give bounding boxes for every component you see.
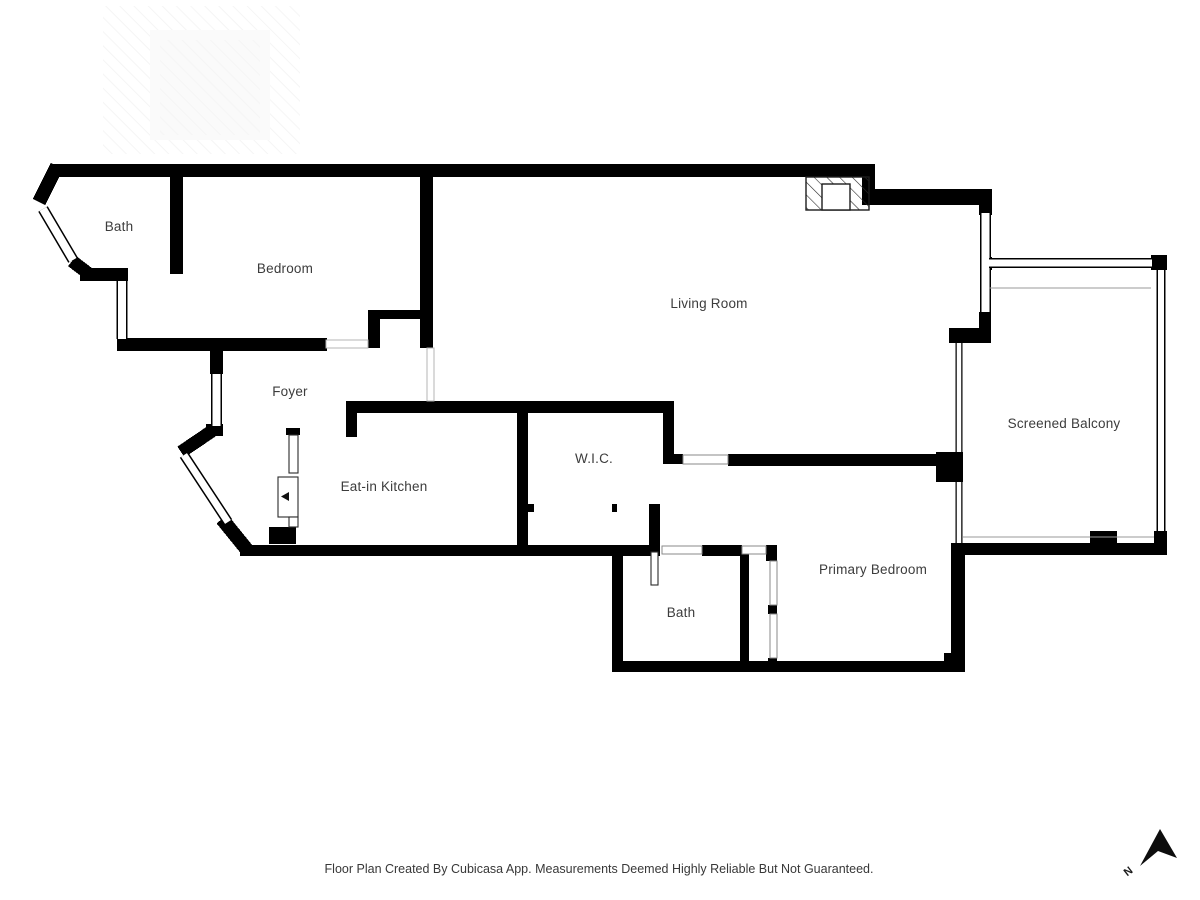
room-label-wic: W.I.C. [575,451,613,466]
north-arrow-icon: N [1122,829,1177,879]
room-label-living-room: Living Room [670,296,747,311]
walls [39,164,1167,672]
windows [43,209,1161,543]
entry-sidelight [289,435,298,473]
watermark-texture [103,6,300,154]
floor-plan-page: Bath Bedroom Living Room Foyer Eat-in Ki… [0,0,1200,900]
room-label-kitchen: Eat-in Kitchen [341,479,428,494]
floor-plan-canvas: Bath Bedroom Living Room Foyer Eat-in Ki… [0,0,1200,900]
bath-door-leaf [651,552,658,585]
room-label-bath-lower: Bath [667,605,696,620]
door-thresholds [326,340,777,658]
north-label: N [1122,865,1136,879]
room-label-balcony: Screened Balcony [1008,416,1121,431]
fireplace-hatch [806,177,869,210]
room-label-bedroom: Bedroom [257,261,313,276]
room-label-primary-bedroom: Primary Bedroom [819,562,927,577]
room-label-foyer: Foyer [272,384,308,399]
room-label-bath-top: Bath [105,219,134,234]
floor-plan-disclaimer: Floor Plan Created By Cubicasa App. Meas… [325,862,874,876]
